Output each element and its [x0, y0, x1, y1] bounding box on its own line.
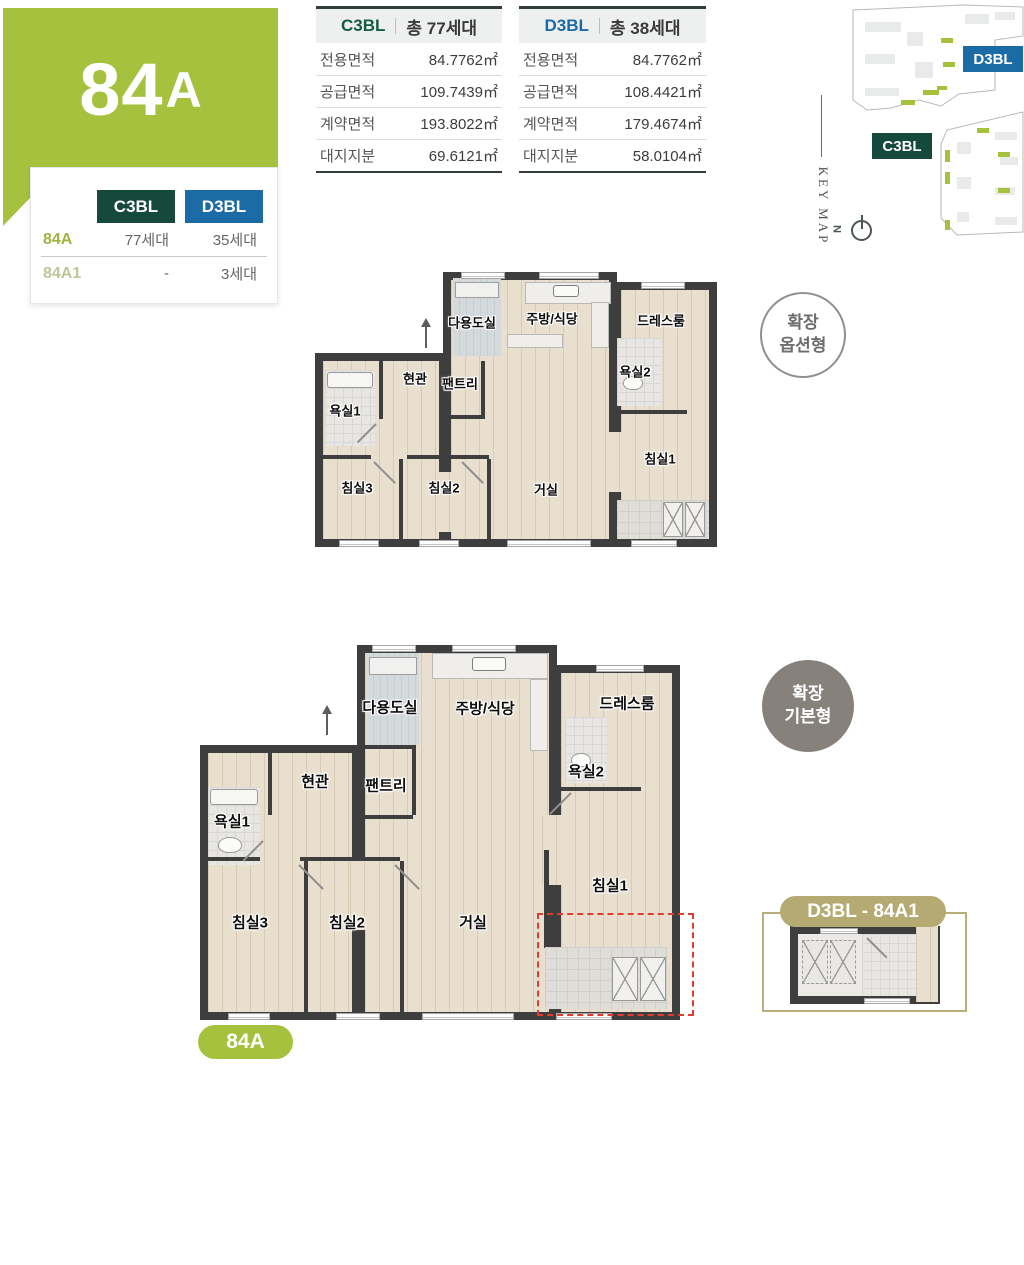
wall-segment: [365, 815, 413, 819]
brochure-page: 84 A C3BL D3BL 84A 77세대 35세대 84A1 - 3세대 …: [0, 0, 1024, 1265]
wall-segment: [208, 857, 260, 861]
window: [422, 1013, 514, 1020]
spec-row: 공급면적 108.4421㎡: [519, 75, 706, 107]
room-label-bathroom2: 욕실2: [568, 761, 604, 782]
wall-segment: [268, 753, 272, 815]
entrance-arrow: [425, 322, 427, 348]
wall-segment: [400, 861, 404, 1012]
toilet: [218, 837, 242, 853]
stamp-expansion-basic: 확장 기본형: [762, 660, 854, 752]
spec-label: 공급면적: [523, 81, 578, 102]
room-label-bedroom3: 침실3: [341, 478, 372, 497]
plan-type-badge: 84A: [198, 1025, 293, 1059]
wardrobe: [802, 940, 828, 984]
window: [419, 540, 459, 547]
room-label-kitchen: 주방/식당: [455, 698, 514, 719]
row-c3bl-count: 77세대: [91, 229, 179, 250]
window: [507, 540, 591, 547]
wall-segment: [481, 361, 485, 419]
unit-type-number: 84: [79, 53, 163, 127]
wall-segment: [365, 745, 415, 749]
wall-segment: [447, 415, 485, 419]
window: [339, 540, 379, 547]
wardrobe: [663, 502, 683, 537]
block-name: D3BL: [545, 16, 589, 36]
wardrobe: [685, 502, 705, 537]
wall-segment: [613, 410, 687, 414]
window: [372, 645, 416, 652]
room-label-bedroom1: 침실1: [644, 449, 675, 468]
spec-label: 대지지분: [523, 145, 578, 166]
spec-table-header: D3BL 총 38세대: [519, 9, 706, 43]
compass-north-label: N: [832, 225, 844, 233]
wall-segment: [300, 857, 400, 861]
spec-table-header: C3BL 총 77세대: [316, 9, 502, 43]
wall-segment: [379, 361, 383, 419]
spec-table-d3bl: D3BL 총 38세대 전용면적 84.7762㎡ 공급면적 108.4421㎡…: [519, 6, 706, 173]
spec-row: 계약면적 193.8022㎡: [316, 107, 502, 139]
kitchen-island: [507, 334, 563, 348]
window: [539, 272, 599, 279]
washer: [455, 282, 499, 298]
keymap-title: KEY MAP: [815, 165, 831, 247]
inset-variant-label: D3BL - 84A1: [780, 896, 946, 927]
spec-label: 공급면적: [320, 81, 375, 102]
spec-row: 전용면적 84.7762㎡: [316, 43, 502, 75]
room-label-bedroom2: 침실2: [428, 478, 459, 497]
floor-passage: [605, 432, 625, 492]
header-divider: [599, 18, 600, 34]
room-label-bedroom2: 침실2: [329, 912, 365, 933]
spec-table-c3bl: C3BL 총 77세대 전용면적 84.7762㎡ 공급면적 109.7439㎡…: [316, 6, 502, 173]
room-label-dressroom: 드레스룸: [599, 693, 654, 714]
window: [228, 1013, 270, 1020]
row-d3bl-count: 35세대: [179, 229, 267, 250]
total-units: 총 38세대: [610, 14, 681, 39]
wall-segment: [407, 455, 489, 459]
unit-count-card: C3BL D3BL 84A 77세대 35세대 84A1 - 3세대: [30, 167, 278, 304]
washer: [369, 657, 417, 675]
block-chip-c3bl: C3BL: [97, 190, 175, 223]
spec-value: 69.6121㎡: [429, 145, 498, 166]
inset-variant-box: [762, 912, 967, 1012]
stamp-line: 기본형: [785, 706, 832, 729]
wall-segment: [561, 787, 641, 791]
stamp-line: 확장: [787, 312, 818, 335]
room-label-livingroom: 거실: [534, 480, 558, 499]
room-label-bedroom3: 침실3: [232, 912, 268, 933]
compass-icon: [851, 220, 872, 241]
unit-type-banner: 84 A: [3, 8, 278, 172]
bathtub: [210, 789, 258, 805]
spec-row: 공급면적 109.7439㎡: [316, 75, 502, 107]
spec-value: 179.4674㎡: [624, 113, 702, 134]
window: [864, 998, 910, 1004]
room-label-dressroom: 드레스룸: [637, 311, 685, 330]
compass-needle: [861, 215, 863, 229]
row-d3bl-count: 3세대: [179, 263, 267, 284]
bathtub: [327, 372, 373, 388]
option-area-outline: [537, 913, 694, 1016]
spec-row: 대지지분 58.0104㎡: [519, 139, 706, 171]
room-label-utility: 다용도실: [362, 697, 417, 718]
spec-value: 109.7439㎡: [420, 81, 498, 102]
key-map: [845, 2, 1024, 244]
room-label-kitchen: 주방/식당: [526, 309, 577, 328]
spec-value: 84.7762㎡: [429, 49, 498, 70]
block-chip-d3bl: D3BL: [185, 190, 263, 223]
row-c3bl-count: -: [91, 265, 179, 282]
spec-label: 전용면적: [523, 49, 578, 70]
window: [631, 540, 677, 547]
window: [596, 665, 644, 672]
spec-row: 전용면적 84.7762㎡: [519, 43, 706, 75]
wall-segment: [399, 459, 403, 539]
stamp-line: 확장: [792, 683, 823, 706]
table-row: 84A1 - 3세대: [39, 257, 269, 290]
row-name: 84A: [39, 231, 91, 249]
room-label-bathroom2: 욕실2: [619, 362, 650, 381]
window: [641, 282, 685, 289]
kitchen-sink: [553, 285, 579, 297]
wall-segment: [487, 459, 491, 539]
spec-label: 전용면적: [320, 49, 375, 70]
spec-value: 108.4421㎡: [624, 81, 702, 102]
header-divider: [395, 18, 396, 34]
room-label-entrance: 현관: [301, 771, 329, 792]
room-label-bathroom1: 욕실1: [329, 401, 360, 420]
window: [820, 928, 858, 934]
spec-value: 193.8022㎡: [420, 113, 498, 134]
kitchen-sink: [472, 657, 506, 671]
spec-label: 계약면적: [523, 113, 578, 134]
stamp-expansion-option: 확장 옵션형: [760, 292, 846, 378]
spec-row: 계약면적 179.4674㎡: [519, 107, 706, 139]
window: [336, 1013, 380, 1020]
row-name: 84A1: [39, 265, 91, 283]
keymap-label-c3bl: C3BL: [872, 133, 932, 159]
table-row: 84A 77세대 35세대: [39, 223, 269, 256]
entrance-arrow: [326, 709, 328, 735]
spec-value: 84.7762㎡: [633, 49, 702, 70]
room-label-bedroom1: 침실1: [592, 875, 628, 896]
unit-type-letter: A: [166, 65, 202, 115]
spec-value: 58.0104㎡: [633, 145, 702, 166]
wall-segment: [412, 745, 416, 815]
room-label-livingroom: 거실: [459, 912, 487, 933]
floorplan-basic-type: 다용도실 주방/식당 드레스룸 욕실2 현관 팬트리 욕실1 침실3 침실2 거…: [200, 645, 680, 1020]
unit-count-header-row: C3BL D3BL: [39, 190, 269, 223]
window: [452, 645, 516, 652]
kitchen-counter: [530, 679, 548, 751]
room-label-pantry: 팬트리: [365, 775, 406, 796]
wardrobe: [830, 940, 856, 984]
kitchen-counter: [591, 302, 609, 348]
total-units: 총 77세대: [406, 14, 477, 39]
spec-label: 계약면적: [320, 113, 375, 134]
spec-row: 대지지분 69.6121㎡: [316, 139, 502, 171]
spec-label: 대지지분: [320, 145, 375, 166]
stamp-line: 옵션형: [780, 335, 827, 358]
keymap-label-d3bl: D3BL: [963, 46, 1023, 72]
room-label-bathroom1: 욕실1: [214, 811, 250, 832]
block-name: C3BL: [341, 16, 385, 36]
wall-segment: [304, 861, 308, 1012]
room-label-entrance: 현관: [403, 369, 427, 388]
wall-segment: [323, 455, 371, 459]
floorplan-option-type: 다용도실 주방/식당 드레스룸 욕실2 현관 팬트리 욕실1 침실3 침실2 거…: [315, 272, 717, 547]
keymap-divider-line: [821, 95, 822, 157]
window: [461, 272, 505, 279]
room-label-pantry: 팬트리: [442, 374, 478, 393]
room-label-utility: 다용도실: [448, 313, 496, 332]
